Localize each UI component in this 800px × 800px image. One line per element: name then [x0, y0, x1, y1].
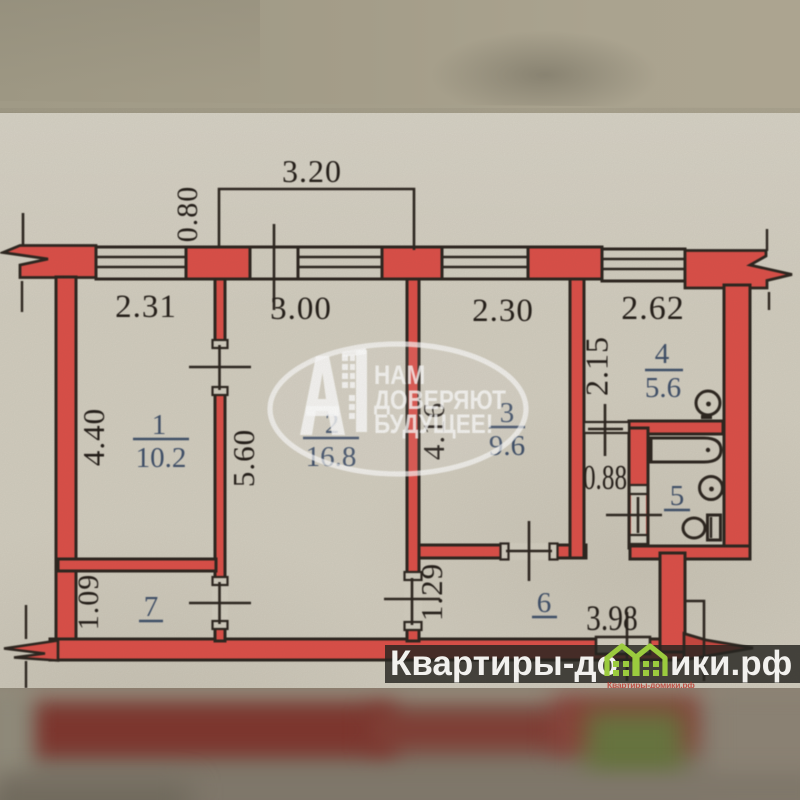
svg-text:ики.рф: ики.рф [670, 644, 792, 683]
svg-text:Квартиры-до: Квартиры-до [390, 644, 618, 683]
